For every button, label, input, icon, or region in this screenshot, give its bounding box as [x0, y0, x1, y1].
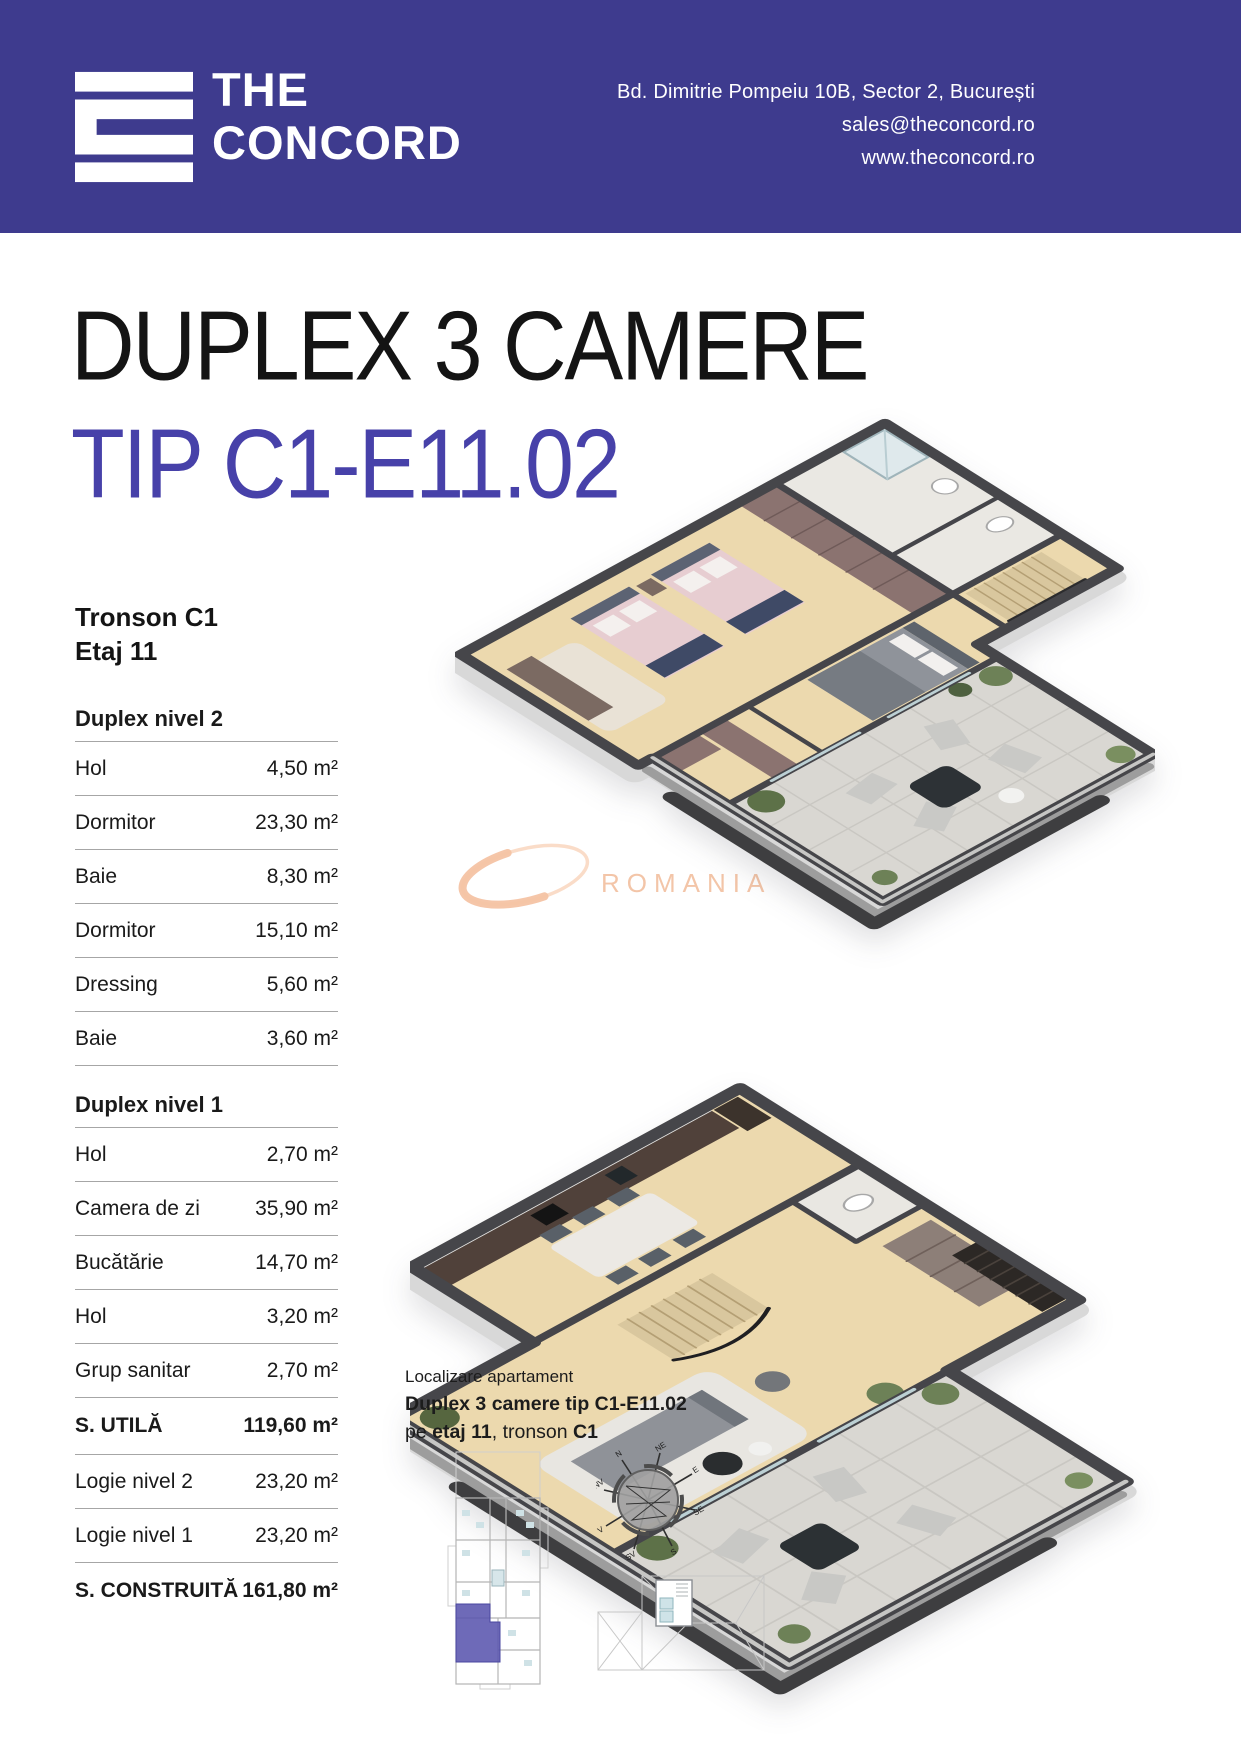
area-table-row: S. CONSTRUITĂ 161,80 m² — [75, 1563, 338, 1619]
address-line: Bd. Dimitrie Pompeiu 10B, Sector 2, Bucu… — [617, 76, 1035, 109]
area-table-row: Duplex nivel 1 — [75, 1066, 338, 1128]
building-key-plan — [446, 1450, 550, 1690]
room-area-value: 35,90 m² — [255, 1197, 338, 1221]
area-table: Duplex nivel 2 Hol 4,50 m² Dormitor 23,3… — [75, 688, 338, 1619]
room-area-value: 23,20 m² — [255, 1524, 338, 1548]
room-area-value: 119,60 m² — [243, 1414, 338, 1438]
area-table-row: Baie 3,60 m² — [75, 1012, 338, 1066]
room-label: Dormitor — [75, 811, 156, 835]
room-area-value: 15,10 m² — [255, 919, 338, 943]
brand-line-1: THE — [212, 63, 462, 116]
room-area-value: 161,80 m² — [242, 1579, 338, 1603]
compass-label: N — [614, 1448, 624, 1459]
tronson-etaj-block: Tronson C1 Etaj 11 — [75, 600, 218, 668]
room-area-value: 8,30 m² — [267, 865, 338, 889]
room-label: Logie nivel 1 — [75, 1524, 193, 1548]
room-area-value: 23,20 m² — [255, 1470, 338, 1494]
room-area-value: 2,70 m² — [267, 1359, 338, 1383]
header-band: THE CONCORD Bd. Dimitrie Pompeiu 10B, Se… — [0, 0, 1241, 233]
area-table-row: Grup sanitar 2,70 m² — [75, 1344, 338, 1398]
area-table-row: Duplex nivel 2 — [75, 688, 338, 742]
compass-label: E — [691, 1465, 700, 1475]
concord-logo-icon — [75, 70, 193, 184]
highlighted-unit — [456, 1604, 500, 1662]
compass-label: NE — [654, 1440, 668, 1454]
room-label: Duplex nivel 2 — [75, 706, 223, 732]
floorplan-3d-level2 — [455, 395, 1155, 980]
room-label: Logie nivel 2 — [75, 1470, 193, 1494]
email-line[interactable]: sales@theconcord.ro — [617, 109, 1035, 142]
room-label: Camera de zi — [75, 1197, 200, 1221]
compass-label: SV — [624, 1549, 638, 1562]
room-label: Grup sanitar — [75, 1359, 191, 1383]
area-table-row: Hol 3,20 m² — [75, 1290, 338, 1344]
area-table-row: Bucătărie 14,70 m² — [75, 1236, 338, 1290]
room-area-value: 3,60 m² — [267, 1027, 338, 1051]
area-table-row: Camera de zi 35,90 m² — [75, 1182, 338, 1236]
room-label: Hol — [75, 1305, 107, 1329]
room-area-value: 14,70 m² — [255, 1251, 338, 1275]
room-label: Hol — [75, 757, 107, 781]
compass-label: V — [596, 1524, 606, 1535]
room-label: Duplex nivel 1 — [75, 1092, 223, 1118]
loc-text: pe — [405, 1421, 432, 1443]
room-area-value: 2,70 m² — [267, 1143, 338, 1167]
brochure-page: THE CONCORD Bd. Dimitrie Pompeiu 10B, Se… — [0, 0, 1241, 1754]
brand-wordmark: THE CONCORD — [212, 63, 462, 169]
localizare-apartment: Duplex 3 camere tip C1-E11.02 — [405, 1390, 687, 1418]
room-label: Bucătărie — [75, 1251, 164, 1275]
area-table-row: Logie nivel 2 23,20 m² — [75, 1455, 338, 1509]
loc-etaj: etaj 11 — [432, 1421, 492, 1443]
area-table-row: Dormitor 23,30 m² — [75, 796, 338, 850]
roof-key-plan — [596, 1574, 768, 1676]
room-label: S. UTILĂ — [75, 1414, 163, 1438]
localizare-title: Localizare apartament — [405, 1364, 687, 1390]
room-area-value: 5,60 m² — [267, 973, 338, 997]
localizare-block: Localizare apartament Duplex 3 camere ti… — [405, 1364, 687, 1446]
room-label: Baie — [75, 1027, 117, 1051]
contact-block: Bd. Dimitrie Pompeiu 10B, Sector 2, Bucu… — [617, 76, 1035, 175]
room-label: Baie — [75, 865, 117, 889]
area-table-row: Baie 8,30 m² — [75, 850, 338, 904]
compass-label: NV — [596, 1477, 606, 1491]
loc-tronson: C1 — [573, 1421, 598, 1443]
compass-label: S — [669, 1547, 678, 1557]
area-table-row: Hol 2,70 m² — [75, 1128, 338, 1182]
etaj-label: Etaj 11 — [75, 634, 218, 668]
room-area-value: 23,30 m² — [255, 811, 338, 835]
room-label: Dressing — [75, 973, 158, 997]
room-area-value: 3,20 m² — [267, 1305, 338, 1329]
area-table-row: S. UTILĂ 119,60 m² — [75, 1398, 338, 1455]
area-table-row: Logie nivel 1 23,20 m² — [75, 1509, 338, 1563]
brand-line-2: CONCORD — [212, 116, 462, 169]
area-table-row: Hol 4,50 m² — [75, 742, 338, 796]
room-label: Hol — [75, 1143, 107, 1167]
room-area-value: 4,50 m² — [267, 757, 338, 781]
area-table-row: Dressing 5,60 m² — [75, 958, 338, 1012]
page-title: DUPLEX 3 CAMERE — [71, 289, 867, 403]
room-label: S. CONSTRUITĂ — [75, 1579, 238, 1603]
loc-text: , tronson — [492, 1421, 573, 1443]
compass-label: SE — [692, 1504, 706, 1517]
tronson-label: Tronson C1 — [75, 600, 218, 634]
compass-rose-icon: N NE E SE S SV V NV — [596, 1440, 706, 1562]
website-line[interactable]: www.theconcord.ro — [617, 142, 1035, 175]
area-table-row: Dormitor 15,10 m² — [75, 904, 338, 958]
room-label: Dormitor — [75, 919, 156, 943]
